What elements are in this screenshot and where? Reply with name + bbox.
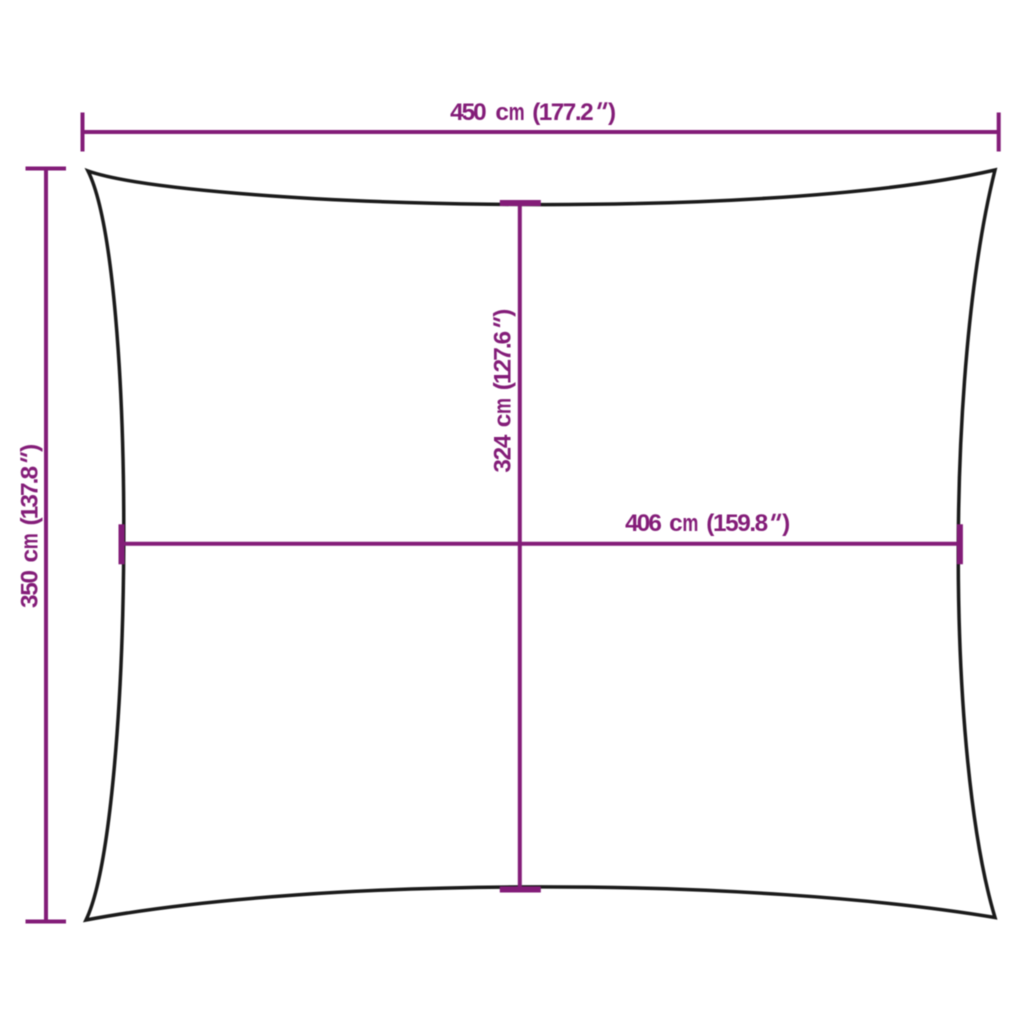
svg-text:): ) <box>490 309 517 317</box>
svg-text:c: c <box>669 510 683 537</box>
svg-text:m: m <box>509 98 525 125</box>
svg-text:m: m <box>682 509 698 536</box>
svg-text:(137.8: (137.8 <box>17 466 44 526</box>
svg-text:324: 324 <box>490 434 517 472</box>
svg-text:): ) <box>608 99 616 126</box>
svg-text:350: 350 <box>17 570 44 608</box>
svg-text:(177.2: (177.2 <box>532 99 593 126</box>
svg-text:406: 406 <box>625 510 662 537</box>
svg-text:): ) <box>782 510 790 537</box>
svg-text:): ) <box>17 444 44 452</box>
svg-text:(159.8: (159.8 <box>706 510 768 537</box>
svg-text:450: 450 <box>450 99 487 126</box>
svg-text:c: c <box>17 549 44 563</box>
svg-text:m: m <box>16 533 43 549</box>
svg-text:(127.6: (127.6 <box>490 331 517 390</box>
svg-text:c: c <box>490 414 517 428</box>
svg-text:m: m <box>489 398 516 414</box>
svg-text:c: c <box>495 99 509 126</box>
